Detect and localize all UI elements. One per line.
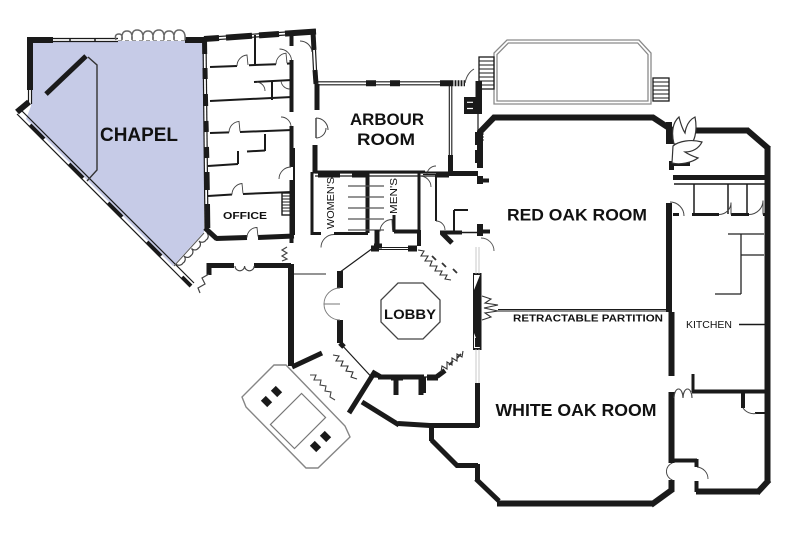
svg-text:RETRACTABLE PARTITION: RETRACTABLE PARTITION [513, 313, 663, 325]
svg-text:ARBOUR: ARBOUR [350, 110, 424, 129]
svg-text:RED OAK ROOM: RED OAK ROOM [507, 206, 647, 225]
svg-text:LOBBY: LOBBY [384, 306, 437, 322]
svg-text:WOMEN'S: WOMEN'S [326, 177, 337, 229]
svg-text:KITCHEN: KITCHEN [686, 320, 732, 331]
svg-text:WHITE OAK ROOM: WHITE OAK ROOM [496, 400, 657, 420]
svg-text:ROOM: ROOM [357, 130, 415, 149]
svg-text:MEN'S: MEN'S [389, 178, 400, 214]
svg-text:CHAPEL: CHAPEL [100, 125, 178, 146]
svg-text:OFFICE: OFFICE [223, 210, 267, 222]
